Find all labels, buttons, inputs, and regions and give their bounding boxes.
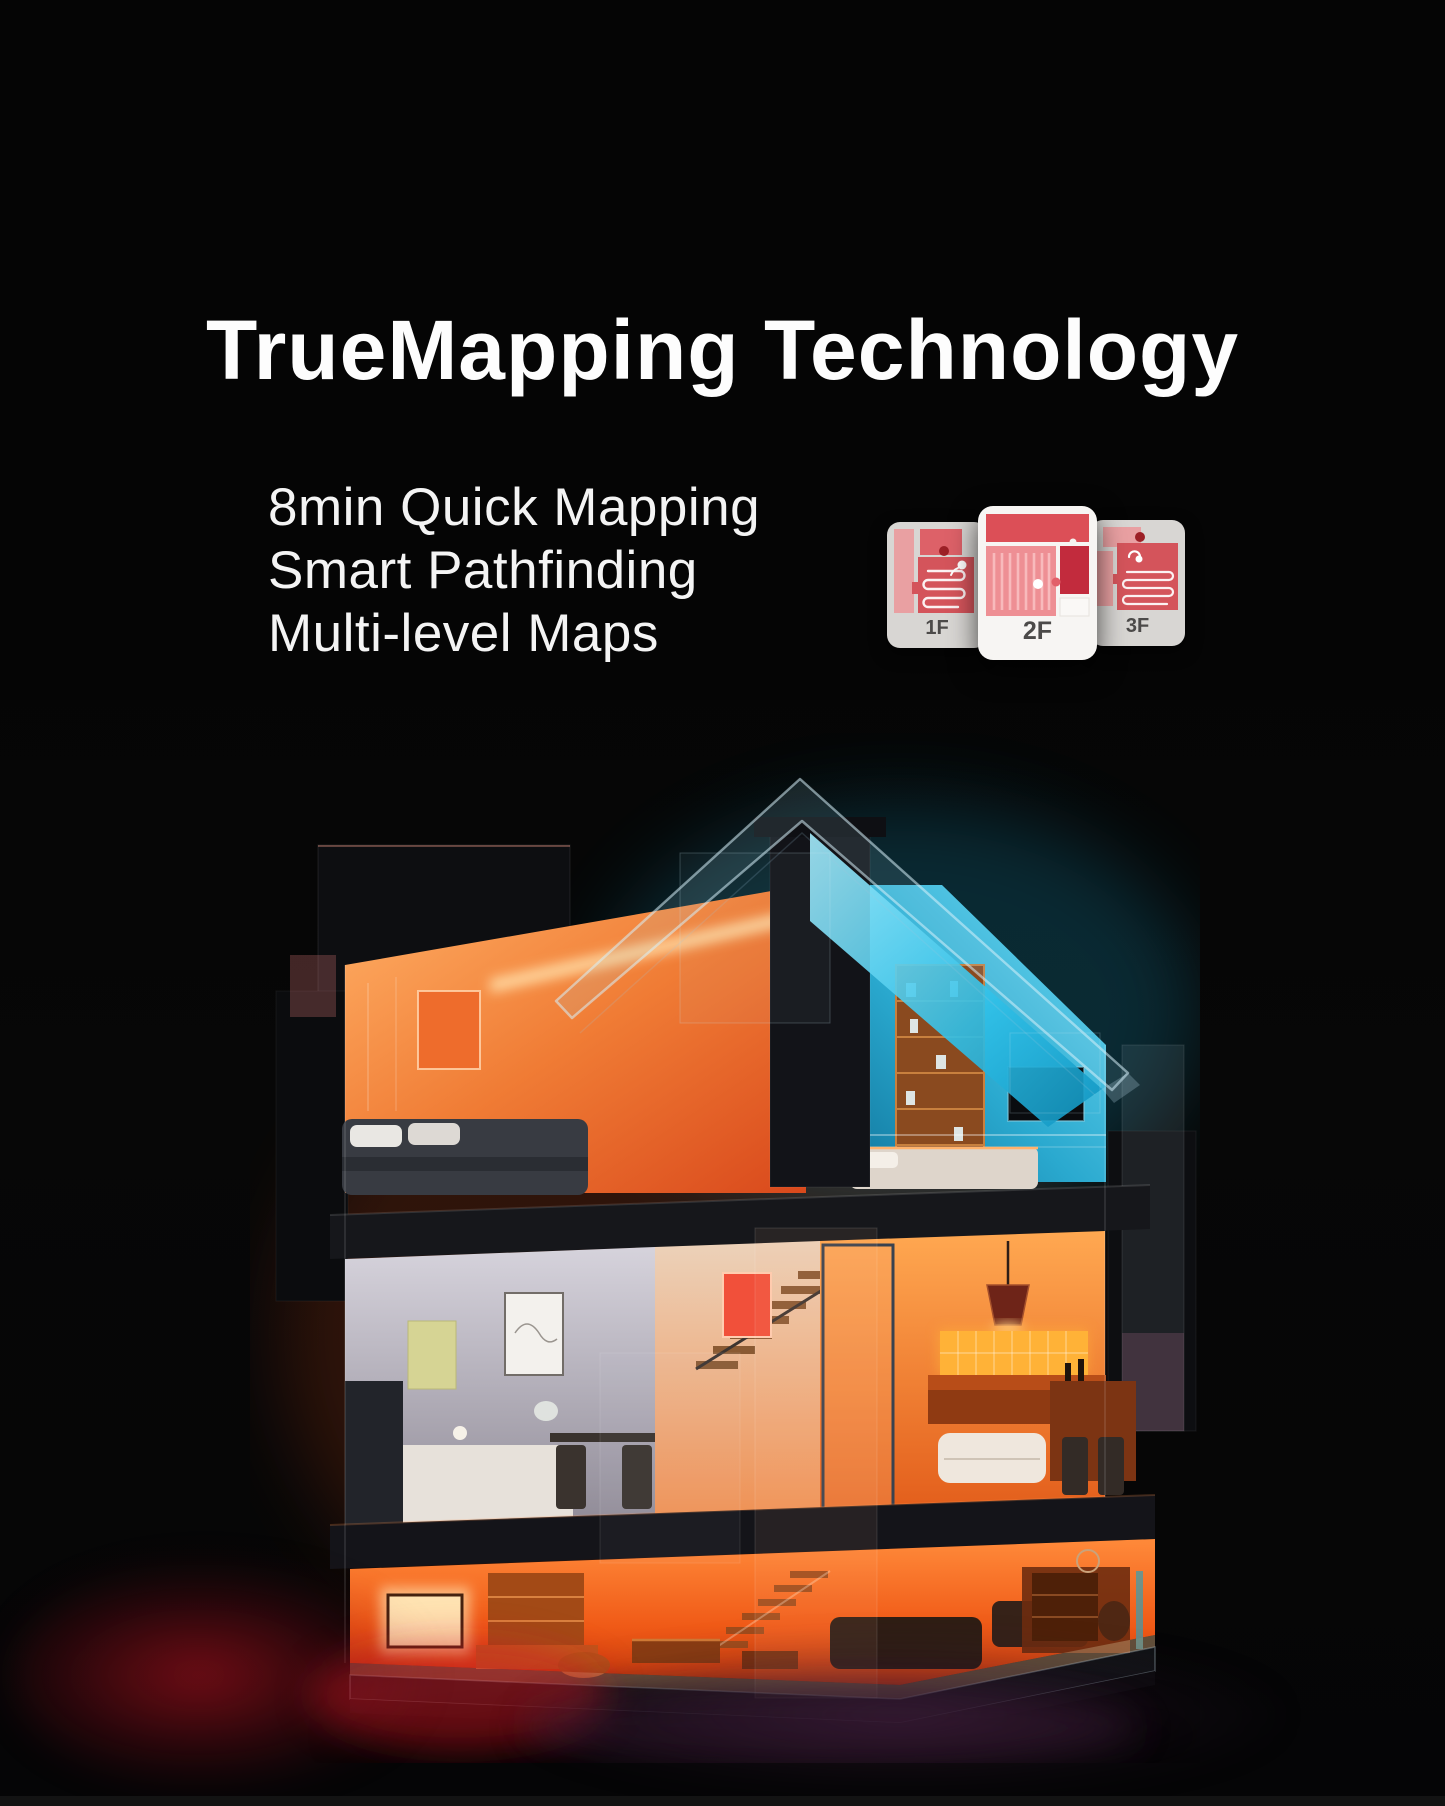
feature-smart-pathfinding: Smart Pathfinding (268, 539, 760, 602)
dock-dot (939, 546, 949, 556)
robot-position-dot (1136, 556, 1143, 563)
robot-position-dot (958, 561, 967, 570)
robot-position-dot (1033, 579, 1043, 589)
floor-map-cards: 1F 2F (880, 500, 1192, 672)
floor-map-2f-graphic (978, 506, 1097, 621)
floor-label-2f: 2F (978, 617, 1097, 646)
pendant-lamp (987, 1285, 1029, 1325)
bottom-strip (0, 1796, 1445, 1806)
floor-map-card-1f: 1F (887, 522, 987, 648)
floor-map-card-2f: 2F (978, 506, 1097, 660)
floor-label-3f: 3F (1090, 615, 1185, 638)
doorway-notch (1052, 578, 1061, 587)
floor-map-3f-graphic (1090, 520, 1185, 616)
page-title: TrueMapping Technology (0, 308, 1445, 392)
shelving-unit (488, 1573, 584, 1645)
dock-dot (1135, 532, 1145, 542)
floor-reflection-glow (520, 1640, 1280, 1790)
floor-label-1f: 1F (887, 617, 987, 640)
guest-bed (403, 1445, 573, 1527)
framed-art (505, 1293, 563, 1375)
plant (1098, 1601, 1130, 1641)
feature-list: 8min Quick Mapping Smart Pathfinding Mul… (268, 476, 760, 665)
feature-multi-level-maps: Multi-level Maps (268, 602, 760, 665)
framed-art (408, 1321, 456, 1389)
floor-map-card-3f: 3F (1090, 520, 1185, 646)
marketing-banner: TrueMapping Technology 8min Quick Mappin… (0, 0, 1445, 1806)
ember-glow (10, 1560, 430, 1790)
bedroom-painting (418, 991, 480, 1069)
floor-map-1f-graphic (887, 522, 987, 620)
feature-quick-mapping: 8min Quick Mapping (268, 476, 760, 539)
